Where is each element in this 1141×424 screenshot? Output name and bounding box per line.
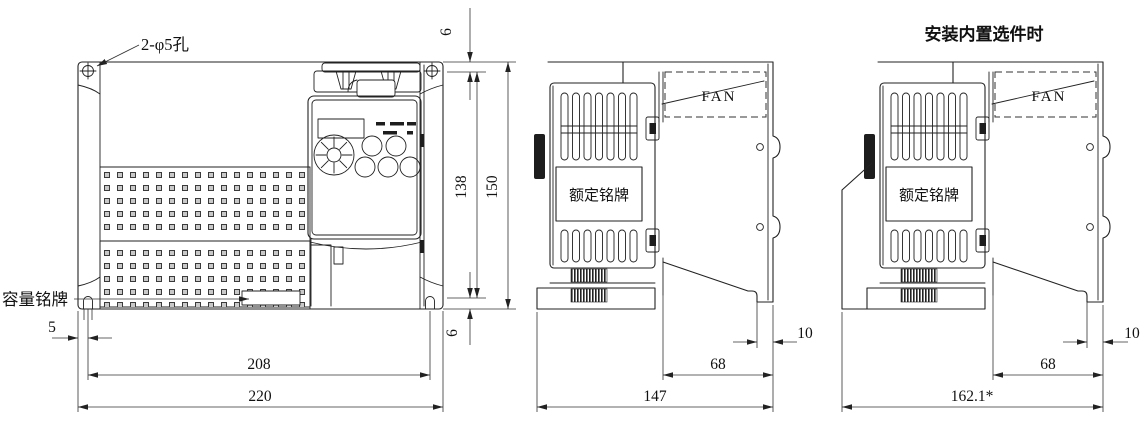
option-unit-outline xyxy=(842,163,872,309)
dim-overall-width: 220 xyxy=(248,388,272,405)
keyhole-slot xyxy=(84,297,93,309)
dim-heatsink-depth: 68 xyxy=(710,356,726,373)
fan-label: FAN xyxy=(702,89,737,105)
terminal-cover xyxy=(314,63,421,97)
drawing-svg: 2-φ5孔 容量铭牌 6 138 150 6 5 208 220 FAN 额定铭… xyxy=(0,0,1141,424)
capacity-nameplate-label: 容量铭牌 xyxy=(2,290,68,309)
setting-dial-icon xyxy=(314,135,354,175)
dim-hole-pitch-vertical: 138 xyxy=(453,175,470,199)
fan-label: FAN xyxy=(1032,89,1067,105)
hole-callout-leader xyxy=(97,45,139,66)
rating-nameplate-label: 额定铭牌 xyxy=(899,187,959,204)
front-view: 2-φ5孔 容量铭牌 6 138 150 6 5 208 220 xyxy=(2,8,516,412)
dim-overall-depth: 147 xyxy=(643,388,667,405)
capacity-nameplate xyxy=(242,291,300,305)
side-view: FAN 额定铭牌 10 68 147 xyxy=(534,62,813,412)
indicator-leds xyxy=(376,122,416,135)
dim-heatsink-depth: 68 xyxy=(1040,356,1056,373)
option-view-title: 安装内置选件时 xyxy=(925,24,1044,44)
dim-bottom-hole-offset: 6 xyxy=(444,329,461,337)
dim-overall-height: 150 xyxy=(484,175,501,199)
display xyxy=(318,119,364,138)
dim-back-protrusion: 10 xyxy=(1124,325,1140,342)
side-view-dimensions xyxy=(537,295,797,412)
mounting-hole-icon xyxy=(424,63,440,79)
dim-left-hole-offset: 5 xyxy=(48,319,56,336)
hole-callout-label: 2-φ5孔 xyxy=(141,35,189,54)
inverter-dimension-drawing: 2-φ5孔 容量铭牌 6 138 150 6 5 208 220 FAN 额定铭… xyxy=(0,0,1141,424)
keyhole-slot xyxy=(426,297,435,309)
keypad-buttons xyxy=(355,136,420,177)
dim-overall-depth: 162.1* xyxy=(951,388,994,405)
dim-hole-pitch-horizontal: 208 xyxy=(247,356,271,373)
option-side-view: 安装内置选件时 FAN 额定铭牌 10 68 162.1* xyxy=(842,24,1140,412)
rating-nameplate-label: 额定铭牌 xyxy=(569,187,629,204)
vent-grid-upper xyxy=(103,171,308,235)
mounting-hole-icon xyxy=(80,63,96,79)
dim-back-protrusion: 10 xyxy=(797,325,813,342)
keypad-panel xyxy=(308,96,422,249)
dim-top-hole-offset: 6 xyxy=(438,28,455,36)
